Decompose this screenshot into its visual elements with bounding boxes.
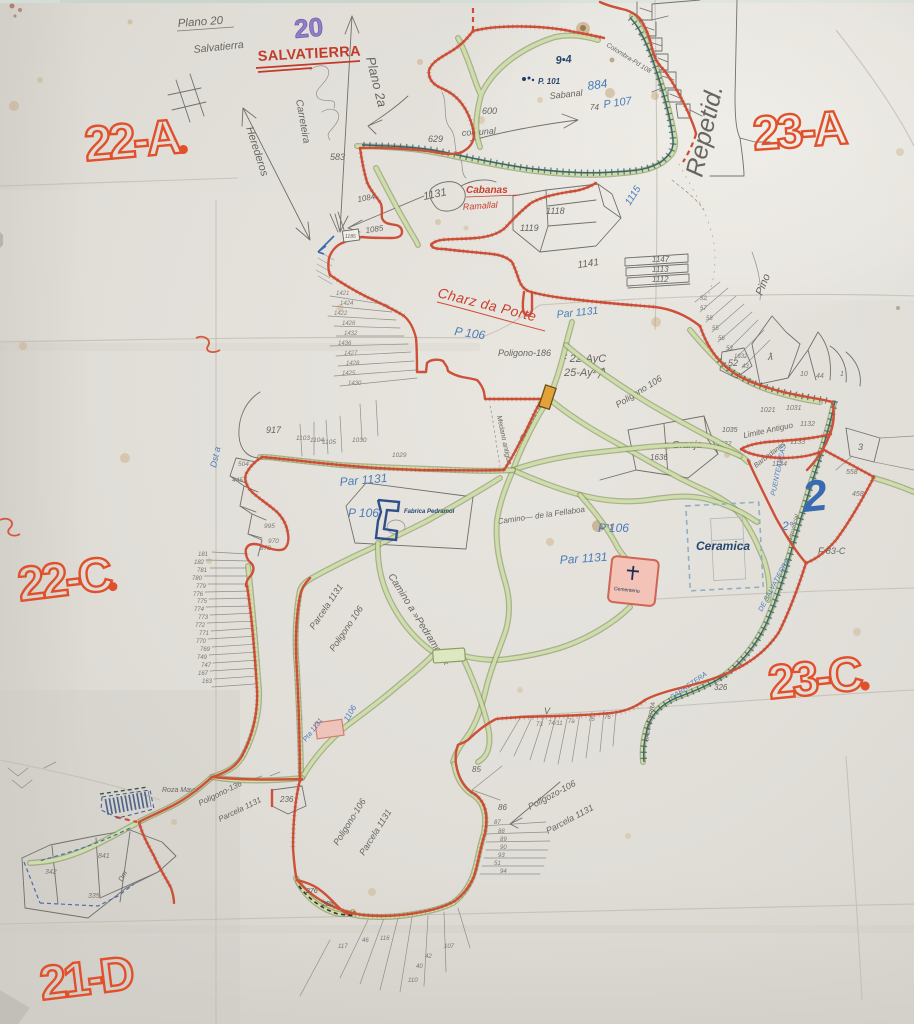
svg-text:110: 110: [408, 978, 418, 984]
svg-text:42: 42: [425, 954, 432, 960]
svg-text:917: 917: [266, 425, 282, 435]
svg-text:167: 167: [198, 671, 209, 677]
svg-text:86: 86: [498, 803, 507, 812]
svg-text:1035: 1035: [722, 427, 738, 434]
svg-text:504: 504: [238, 461, 249, 468]
svg-text:88: 88: [498, 829, 505, 835]
svg-text:747: 747: [201, 663, 212, 669]
svg-text:87: 87: [494, 820, 501, 826]
svg-text:772: 772: [195, 623, 206, 629]
svg-text:Cabanas: Cabanas: [466, 185, 508, 196]
svg-text:89: 89: [500, 837, 507, 843]
svg-text:773: 773: [198, 615, 209, 621]
svg-text:181: 181: [198, 552, 208, 558]
svg-text:56: 56: [718, 336, 725, 342]
svg-text:995: 995: [264, 523, 275, 530]
svg-text:V: V: [544, 706, 551, 716]
svg-text:774: 774: [194, 607, 205, 613]
svg-text:445: 445: [232, 477, 243, 484]
svg-text:23-C: 23-C: [766, 647, 865, 710]
svg-text:74: 74: [590, 103, 599, 112]
svg-text:600: 600: [482, 106, 497, 116]
svg-text:P 106: P 106: [598, 521, 629, 535]
svg-text:51: 51: [494, 861, 501, 867]
svg-text:117: 117: [338, 944, 348, 950]
svg-text:841: 841: [98, 853, 110, 860]
svg-text:44: 44: [816, 373, 824, 380]
svg-text:1185: 1185: [345, 234, 356, 240]
svg-text:9•4: 9•4: [555, 53, 572, 67]
svg-text:770: 770: [196, 639, 207, 645]
svg-text:1428: 1428: [346, 361, 360, 367]
svg-text:Poligono-186: Poligono-186: [498, 348, 551, 358]
svg-text:107: 107: [444, 944, 455, 950]
svg-text:22-A: 22-A: [82, 110, 183, 172]
svg-text:781: 781: [197, 568, 207, 574]
svg-text:90: 90: [500, 845, 507, 851]
svg-text:F 83-C: F 83-C: [818, 546, 846, 556]
svg-text:1030: 1030: [352, 437, 367, 444]
svg-text:1432: 1432: [344, 331, 358, 337]
svg-text:884: 884: [586, 76, 608, 93]
svg-text:335: 335: [88, 893, 100, 900]
svg-text:326: 326: [714, 683, 728, 692]
svg-text:182: 182: [194, 560, 205, 566]
svg-text:85: 85: [472, 765, 481, 774]
svg-text:58: 58: [706, 316, 713, 322]
svg-text:1118: 1118: [546, 206, 565, 216]
svg-text:1426: 1426: [342, 321, 356, 327]
svg-text:558: 558: [846, 469, 858, 476]
svg-text:1105: 1105: [322, 439, 336, 446]
svg-text:73: 73: [536, 722, 543, 728]
svg-text:970: 970: [268, 538, 279, 545]
svg-text:276: 276: [305, 888, 318, 895]
svg-text:1421: 1421: [336, 291, 349, 297]
svg-text:1436: 1436: [338, 341, 352, 347]
svg-text:46: 46: [362, 938, 369, 944]
svg-text:771: 771: [199, 631, 209, 637]
svg-text:21-D: 21-D: [37, 947, 136, 1011]
svg-text:780: 780: [192, 576, 203, 582]
svg-text:94: 94: [500, 869, 507, 875]
svg-text:Ceramica: Ceramica: [696, 539, 750, 553]
svg-text:1: 1: [840, 371, 844, 378]
svg-text:57: 57: [700, 306, 707, 312]
svg-text:93: 93: [498, 853, 505, 859]
svg-text:1112: 1112: [652, 275, 669, 284]
svg-text:1430: 1430: [348, 381, 362, 387]
svg-text:P 106: P 106: [348, 506, 379, 520]
svg-text:1425: 1425: [342, 371, 356, 377]
svg-text:116: 116: [380, 936, 390, 942]
svg-text:2°: 2°: [781, 519, 794, 533]
svg-text:23-A: 23-A: [751, 102, 849, 161]
svg-text:40: 40: [416, 964, 423, 970]
svg-text:1427: 1427: [344, 351, 358, 357]
svg-text:1147: 1147: [652, 255, 670, 264]
svg-text:10: 10: [800, 371, 808, 378]
svg-text:1424: 1424: [340, 301, 354, 307]
svg-text:P. 101: P. 101: [538, 77, 561, 86]
svg-text:1029: 1029: [392, 452, 407, 459]
svg-text:1132: 1132: [800, 421, 815, 428]
svg-text:775: 775: [197, 599, 208, 605]
svg-text:3: 3: [858, 442, 863, 452]
svg-text:749: 749: [197, 655, 208, 661]
svg-text:236: 236: [279, 795, 294, 804]
svg-text:74/11: 74/11: [548, 721, 563, 727]
svg-text:776: 776: [193, 592, 204, 598]
svg-text:1422: 1422: [334, 311, 348, 317]
svg-text:52: 52: [700, 296, 707, 302]
svg-text:769: 769: [200, 647, 211, 653]
svg-text:55: 55: [712, 326, 719, 332]
svg-text:1103: 1103: [296, 435, 310, 442]
svg-text:7a: 7a: [568, 719, 575, 725]
svg-text:1119: 1119: [520, 223, 539, 233]
svg-text:75: 75: [588, 717, 595, 723]
svg-text:342: 342: [45, 869, 57, 876]
svg-text:629: 629: [428, 134, 443, 144]
svg-text:Fabrica Pedramol: Fabrica Pedramol: [404, 509, 455, 515]
svg-text:ƛ: ƛ: [767, 352, 773, 363]
svg-text:583: 583: [330, 152, 345, 162]
svg-text:779: 779: [196, 584, 207, 590]
svg-text:20: 20: [293, 12, 324, 44]
svg-text:1113: 1113: [652, 265, 669, 274]
svg-text:163: 163: [202, 679, 213, 685]
svg-text:1031: 1031: [786, 405, 802, 412]
svg-text:1021: 1021: [760, 407, 776, 414]
